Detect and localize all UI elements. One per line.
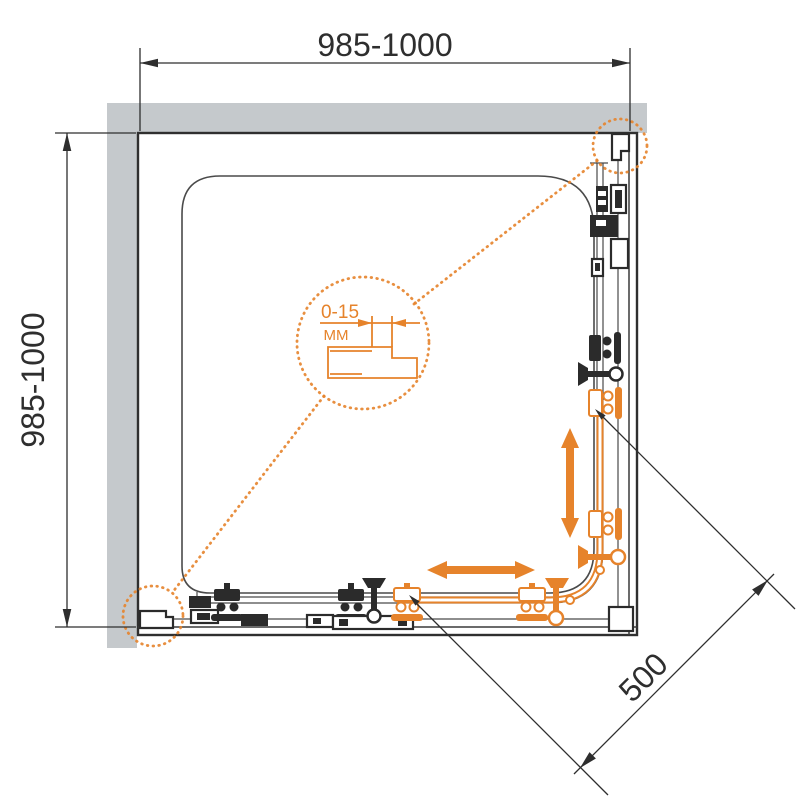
door-roller-orange-4: [589, 508, 622, 540]
door-knob-black-right: [578, 362, 623, 386]
detail-adjustment-profile: 0-15 MM: [320, 302, 420, 378]
diagonal-entry-label: 500: [612, 646, 675, 709]
door-rail-inner: [197, 163, 597, 597]
wall-profile-bottom-left: [140, 611, 173, 628]
shower-tray: [182, 176, 594, 593]
adjustment-range-label: 0-15: [321, 302, 359, 323]
door-roller-black-1: [211, 583, 243, 621]
drawing-canvas: 0-15 MM 985-1000 985-1000 500: [0, 0, 807, 805]
slide-arrow-horizontal: [427, 561, 535, 579]
corner-block: [609, 607, 633, 631]
left-height-label: 985-1000: [15, 312, 51, 447]
door-rail-outer: [197, 163, 603, 603]
door-roller-black-3: [589, 332, 621, 364]
detail-callout-links: [123, 119, 647, 646]
door-roller-orange-3: [589, 387, 622, 419]
detail-circle: [297, 277, 429, 409]
slide-arrow-vertical: [561, 428, 579, 538]
adjustment-unit-label: MM: [324, 327, 349, 344]
wall-profile-top-right: [612, 134, 629, 160]
enclosure-frame: [138, 133, 637, 635]
wall-left: [107, 103, 137, 648]
top-width-label: 985-1000: [317, 27, 452, 63]
wall-top: [107, 103, 647, 133]
shower-enclosure-technical-drawing: 0-15 MM 985-1000 985-1000 500: [0, 0, 807, 805]
glass-clamp-right: [611, 239, 628, 268]
